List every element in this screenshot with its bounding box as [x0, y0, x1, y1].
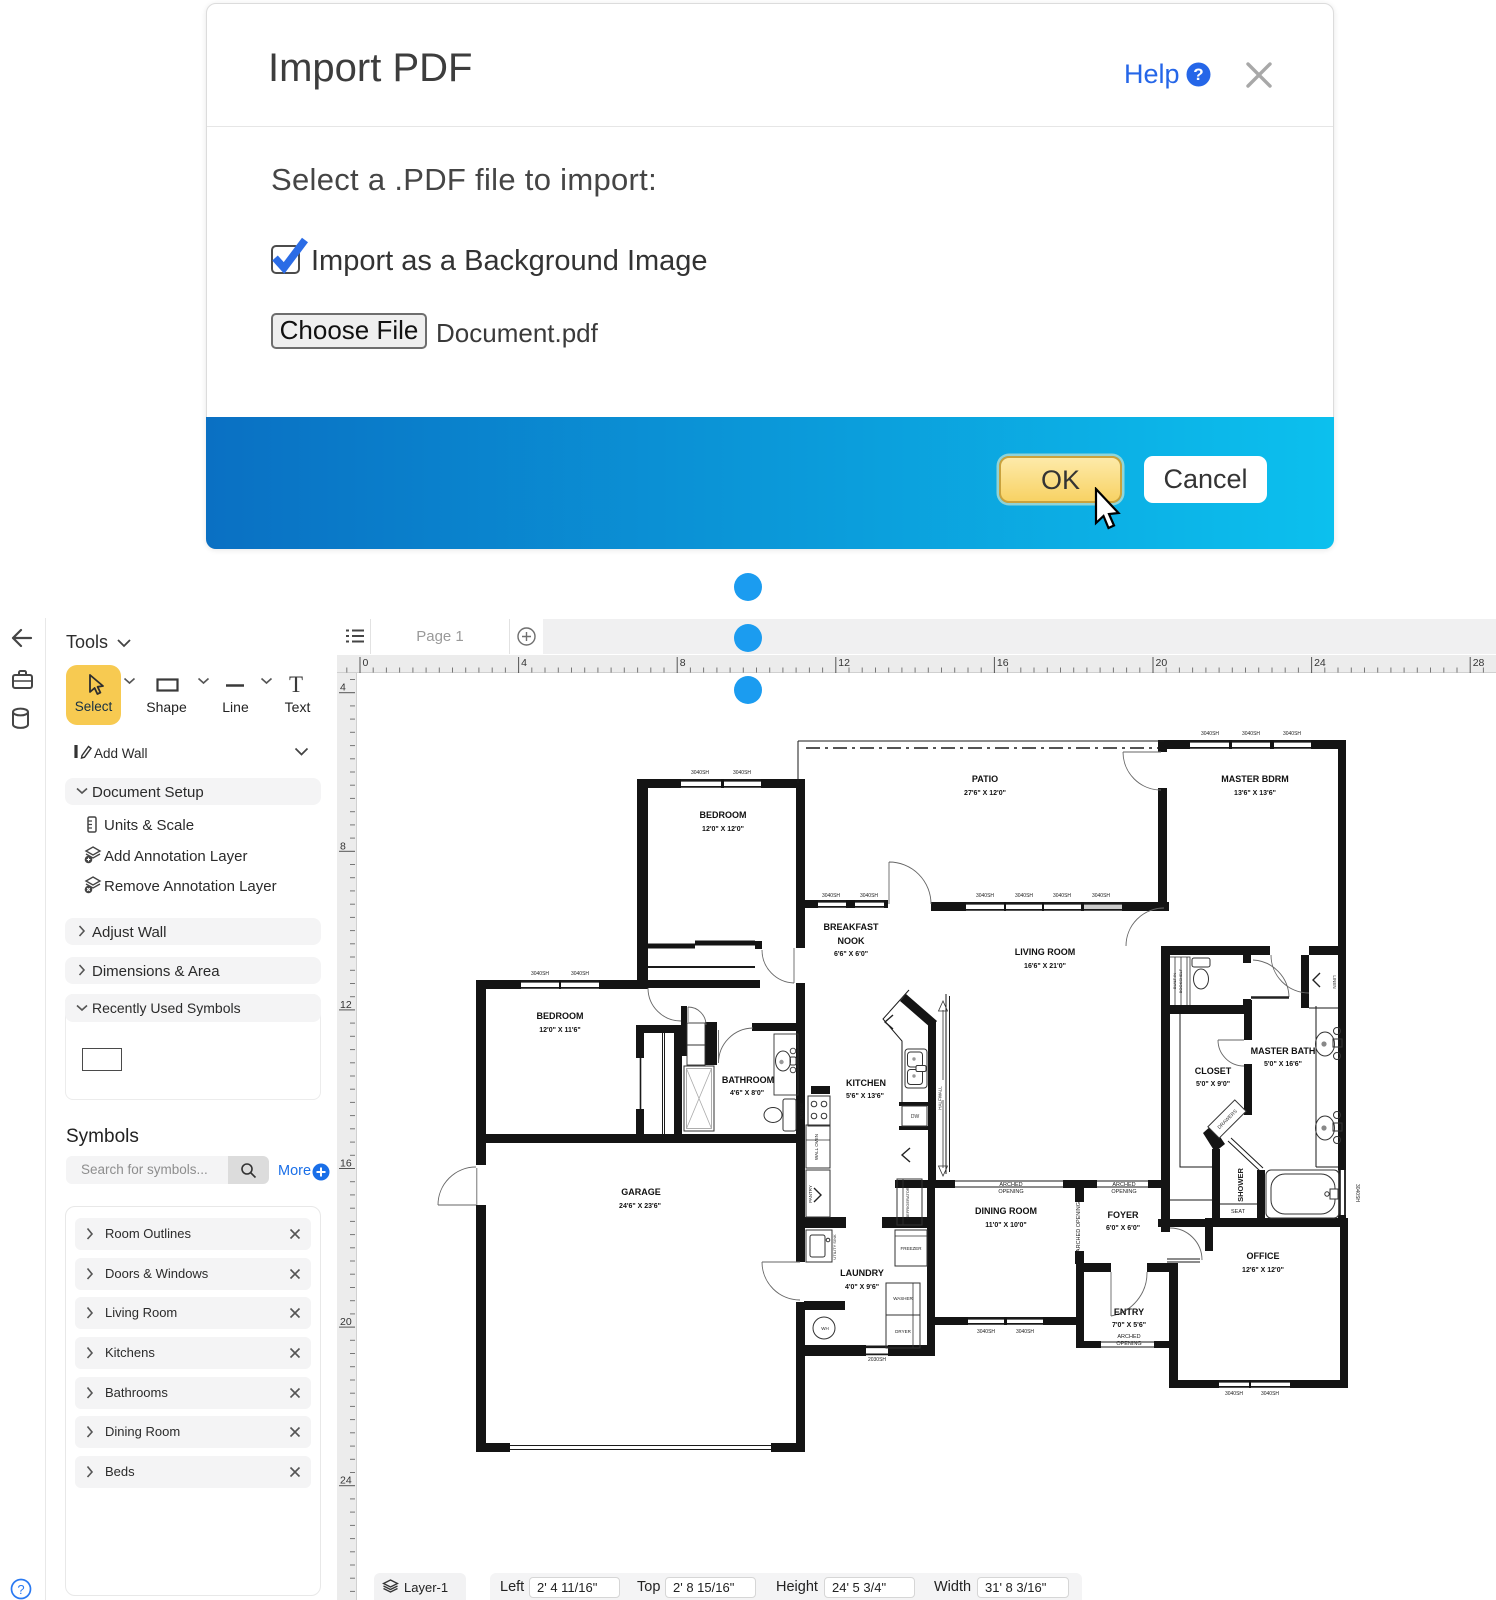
svg-text:20: 20: [340, 1316, 352, 1328]
svg-text:27'6" X 12'0": 27'6" X 12'0": [964, 790, 1006, 797]
svg-text:3040SH: 3040SH: [1354, 1184, 1360, 1202]
svg-text:4: 4: [521, 657, 527, 669]
svg-text:5'6" X 13'6": 5'6" X 13'6": [846, 1093, 884, 1100]
svg-text:MASTER BDRM: MASTER BDRM: [1221, 774, 1289, 784]
svg-text:PATIO: PATIO: [972, 774, 998, 784]
svg-text:12'0" X 12'0": 12'0" X 12'0": [702, 826, 744, 833]
svg-text:3040SH: 3040SH: [860, 893, 878, 899]
svg-text:16'6" X 21'0": 16'6" X 21'0": [1024, 963, 1066, 970]
svg-text:3040SH: 3040SH: [977, 1329, 995, 1335]
svg-text:DINING ROOM: DINING ROOM: [975, 1206, 1037, 1216]
svg-text:5'0" X 9'0": 5'0" X 9'0": [1196, 1081, 1230, 1088]
svg-text:BEDROOM: BEDROOM: [537, 1011, 584, 1021]
svg-text:REFRIGERATOR: REFRIGERATOR: [905, 1187, 910, 1219]
svg-text:KITCHEN: KITCHEN: [846, 1078, 886, 1088]
svg-text:24: 24: [1314, 657, 1326, 669]
svg-text:NOOK: NOOK: [838, 936, 866, 946]
svg-text:7'0" X 5'6": 7'0" X 5'6": [1112, 1322, 1146, 1329]
svg-text:4'0" X 9'6": 4'0" X 9'6": [845, 1284, 879, 1291]
svg-text:FREEZER: FREEZER: [900, 1246, 922, 1251]
svg-text:BUILT-IN: BUILT-IN: [1172, 973, 1177, 989]
svg-text:OPENING: OPENING: [1116, 1341, 1141, 1347]
svg-text:0: 0: [363, 657, 369, 669]
svg-text:3040SH: 3040SH: [1015, 893, 1033, 899]
svg-text:RANGE: RANGE: [799, 1103, 804, 1119]
svg-text:2030SH: 2030SH: [868, 1357, 886, 1363]
svg-text:8: 8: [680, 657, 686, 669]
svg-text:LINEN: LINEN: [1332, 975, 1337, 988]
svg-text:?: ?: [1193, 65, 1203, 84]
svg-text:11'0" X 10'0": 11'0" X 10'0": [985, 1222, 1027, 1229]
svg-text:4'6" X 8'0": 4'6" X 8'0": [730, 1090, 764, 1097]
svg-text:16: 16: [997, 657, 1009, 669]
svg-text:24: 24: [340, 1475, 352, 1487]
svg-text:OPENING: OPENING: [1111, 1189, 1136, 1195]
svg-text:12'6" X 12'0": 12'6" X 12'0": [1242, 1267, 1284, 1274]
svg-text:6'0" X 6'0": 6'0" X 6'0": [1106, 1225, 1140, 1232]
svg-text:3040SH: 3040SH: [531, 971, 549, 977]
svg-text:PANTRY: PANTRY: [808, 1185, 813, 1203]
svg-text:3040SH: 3040SH: [1016, 1329, 1034, 1335]
svg-text:8: 8: [340, 840, 346, 852]
svg-text:DW: DW: [911, 1114, 920, 1120]
svg-text:20: 20: [1156, 657, 1168, 669]
svg-text:12: 12: [340, 999, 352, 1011]
svg-text:CLOSET: CLOSET: [1195, 1066, 1232, 1076]
svg-text:OPENING: OPENING: [998, 1189, 1023, 1195]
svg-text:BOOKSHELF: BOOKSHELF: [1178, 968, 1183, 993]
svg-text:UTILITY SINK: UTILITY SINK: [832, 1234, 837, 1260]
svg-text:6'6" X 6'0": 6'6" X 6'0": [834, 951, 868, 958]
svg-text:LAUNDRY: LAUNDRY: [840, 1268, 884, 1278]
svg-text:ARCHED OPENING: ARCHED OPENING: [1076, 1202, 1082, 1252]
svg-text:WALL OVEN: WALL OVEN: [814, 1134, 819, 1160]
svg-text:SEAT: SEAT: [1231, 1209, 1246, 1215]
svg-text:ARCHED: ARCHED: [999, 1182, 1022, 1188]
svg-text:GARAGE: GARAGE: [621, 1187, 661, 1197]
svg-text:ARCHED: ARCHED: [1112, 1182, 1135, 1188]
svg-text:3040SH: 3040SH: [691, 770, 709, 776]
svg-text:3040SH: 3040SH: [822, 893, 840, 899]
svg-text:3040SH: 3040SH: [976, 893, 994, 899]
svg-text:?: ?: [17, 1582, 24, 1597]
svg-text:3040SH: 3040SH: [571, 971, 589, 977]
svg-text:3040SH: 3040SH: [1201, 731, 1219, 737]
svg-text:16: 16: [340, 1158, 352, 1170]
svg-text:WH: WH: [821, 1326, 829, 1331]
svg-text:24'6" X 23'6": 24'6" X 23'6": [619, 1203, 661, 1210]
svg-text:WASHER: WASHER: [893, 1296, 913, 1301]
svg-text:12'0" X 11'6": 12'0" X 11'6": [539, 1027, 581, 1034]
svg-text:3040SH: 3040SH: [1283, 731, 1301, 737]
svg-text:LIVING ROOM: LIVING ROOM: [1015, 947, 1076, 957]
svg-text:3040SH: 3040SH: [1092, 893, 1110, 899]
svg-text:13'6" X 13'6": 13'6" X 13'6": [1234, 790, 1276, 797]
svg-text:28: 28: [1473, 657, 1485, 669]
svg-text:ENTRY: ENTRY: [1114, 1307, 1144, 1317]
svg-text:3040SH: 3040SH: [1225, 1391, 1243, 1397]
svg-text:DRYER: DRYER: [895, 1329, 911, 1334]
svg-text:3040SH: 3040SH: [1261, 1391, 1279, 1397]
svg-text:3040SH: 3040SH: [1053, 893, 1071, 899]
svg-text:BREAKFAST: BREAKFAST: [823, 922, 879, 932]
svg-text:3040SH: 3040SH: [1242, 731, 1260, 737]
svg-text:SHOWER: SHOWER: [1236, 1168, 1245, 1202]
svg-text:MASTER BATH: MASTER BATH: [1251, 1046, 1316, 1056]
svg-text:OFFICE: OFFICE: [1247, 1251, 1280, 1261]
svg-text:3040SH: 3040SH: [733, 770, 751, 776]
svg-text:ARCHED: ARCHED: [1117, 1334, 1140, 1340]
svg-text:5'0" X 16'6": 5'0" X 16'6": [1264, 1061, 1302, 1068]
svg-text:BATHROOM: BATHROOM: [722, 1075, 774, 1085]
svg-text:BEDROOM: BEDROOM: [700, 810, 747, 820]
svg-text:FOYER: FOYER: [1107, 1210, 1139, 1220]
svg-text:4: 4: [340, 682, 346, 694]
svg-text:12: 12: [838, 657, 850, 669]
svg-text:HALFWALL: HALFWALL: [938, 1086, 943, 1110]
